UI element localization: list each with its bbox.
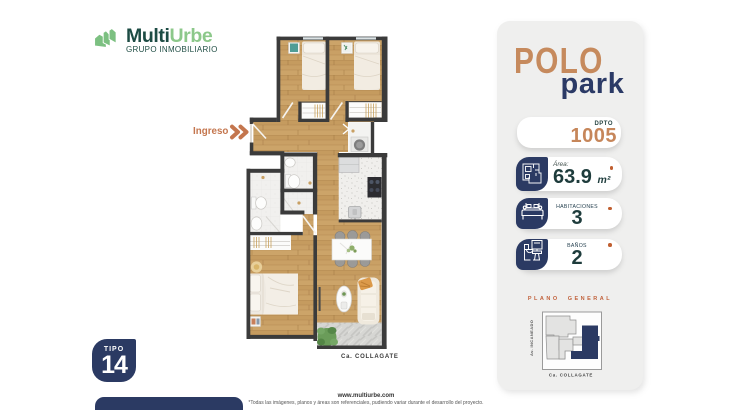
svg-text:Av. INCANEADO: Av. INCANEADO [529, 320, 534, 356]
svg-text:Ca. COLLAGATE: Ca. COLLAGATE [549, 373, 593, 378]
